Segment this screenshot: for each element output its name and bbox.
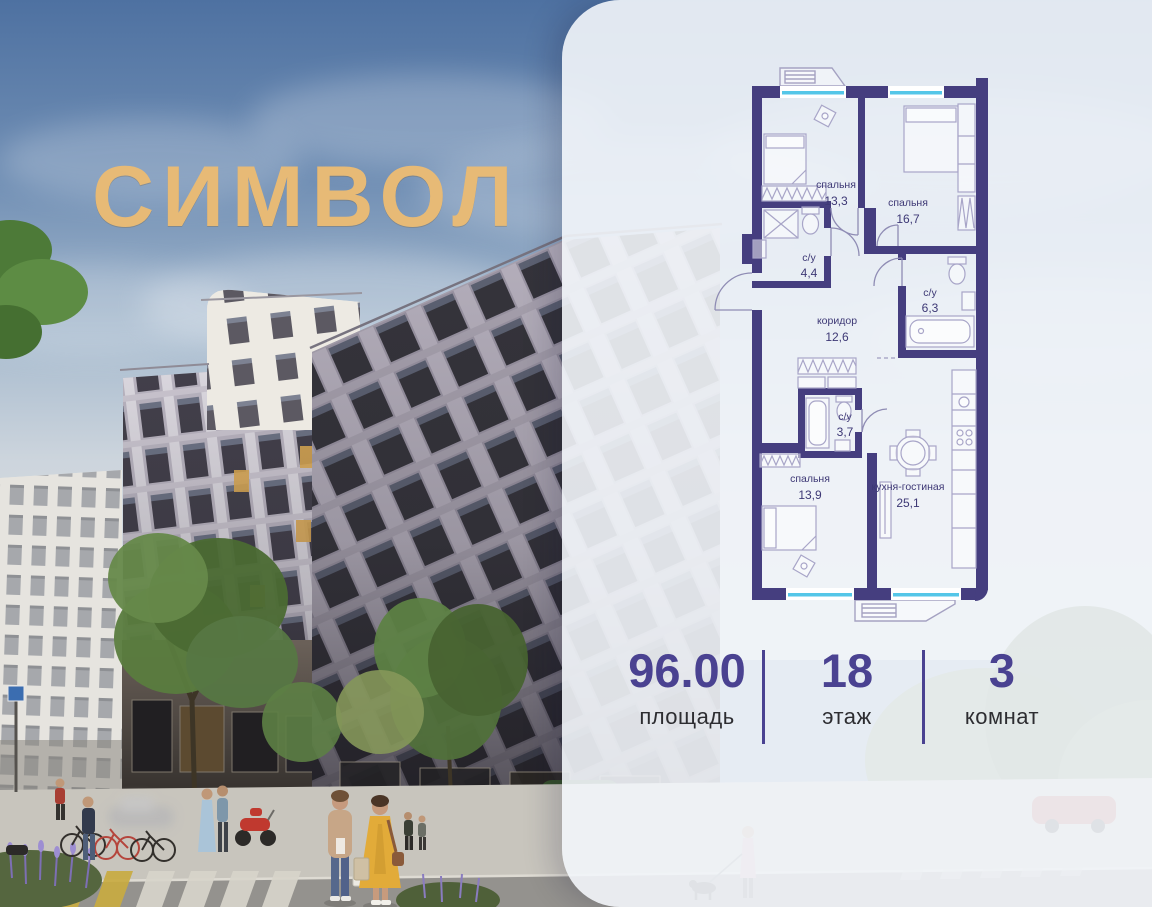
room-label: коридор	[817, 315, 857, 327]
floor-label: этаж	[772, 704, 922, 730]
room-area: 25,1	[896, 496, 920, 510]
balcony-top	[780, 68, 845, 86]
room-area: 13,3	[824, 194, 848, 208]
brand-logo: СИМВОЛ	[92, 148, 521, 247]
room-label: с/у	[838, 411, 852, 423]
rooms-value: 3	[927, 646, 1077, 695]
apartment-listing-card: СИМВОЛ	[0, 0, 1152, 907]
room-label: с/у	[802, 252, 816, 264]
stats-divider	[762, 650, 765, 744]
stat-rooms: 3 комнат	[927, 646, 1077, 730]
room-label: спальня	[888, 197, 928, 209]
stats-row: 96.00 площадь 18 этаж 3 комнат	[562, 640, 1152, 760]
stat-floor: 18 этаж	[772, 646, 922, 730]
balcony-bottom	[855, 600, 955, 621]
parked-scooter	[6, 845, 28, 855]
room-area: 6,3	[922, 301, 939, 315]
room-area: 3,7	[837, 425, 854, 439]
area-value: 96.00	[587, 646, 787, 695]
stat-area: 96.00 площадь	[587, 646, 787, 730]
room-area: 16,7	[896, 212, 920, 226]
man-red-shirt	[55, 779, 65, 821]
room-label: спальня	[816, 179, 856, 191]
room-area: 12,6	[825, 330, 849, 344]
room-label: кухня-гостиная	[872, 481, 945, 493]
floor-value: 18	[772, 646, 922, 695]
room-area: 13,9	[798, 488, 822, 502]
rooms-label: комнат	[927, 704, 1077, 730]
room-area: 4,4	[801, 266, 818, 280]
info-panel: спальня 13,3 спальня 16,7 с/у 4,4 с/у 6,…	[562, 0, 1152, 907]
room-label: с/у	[923, 287, 937, 299]
floor-plan: спальня 13,3 спальня 16,7 с/у 4,4 с/у 6,…	[705, 58, 1010, 643]
area-label: площадь	[587, 704, 787, 730]
room-label: спальня	[790, 473, 830, 485]
stats-divider	[922, 650, 925, 744]
